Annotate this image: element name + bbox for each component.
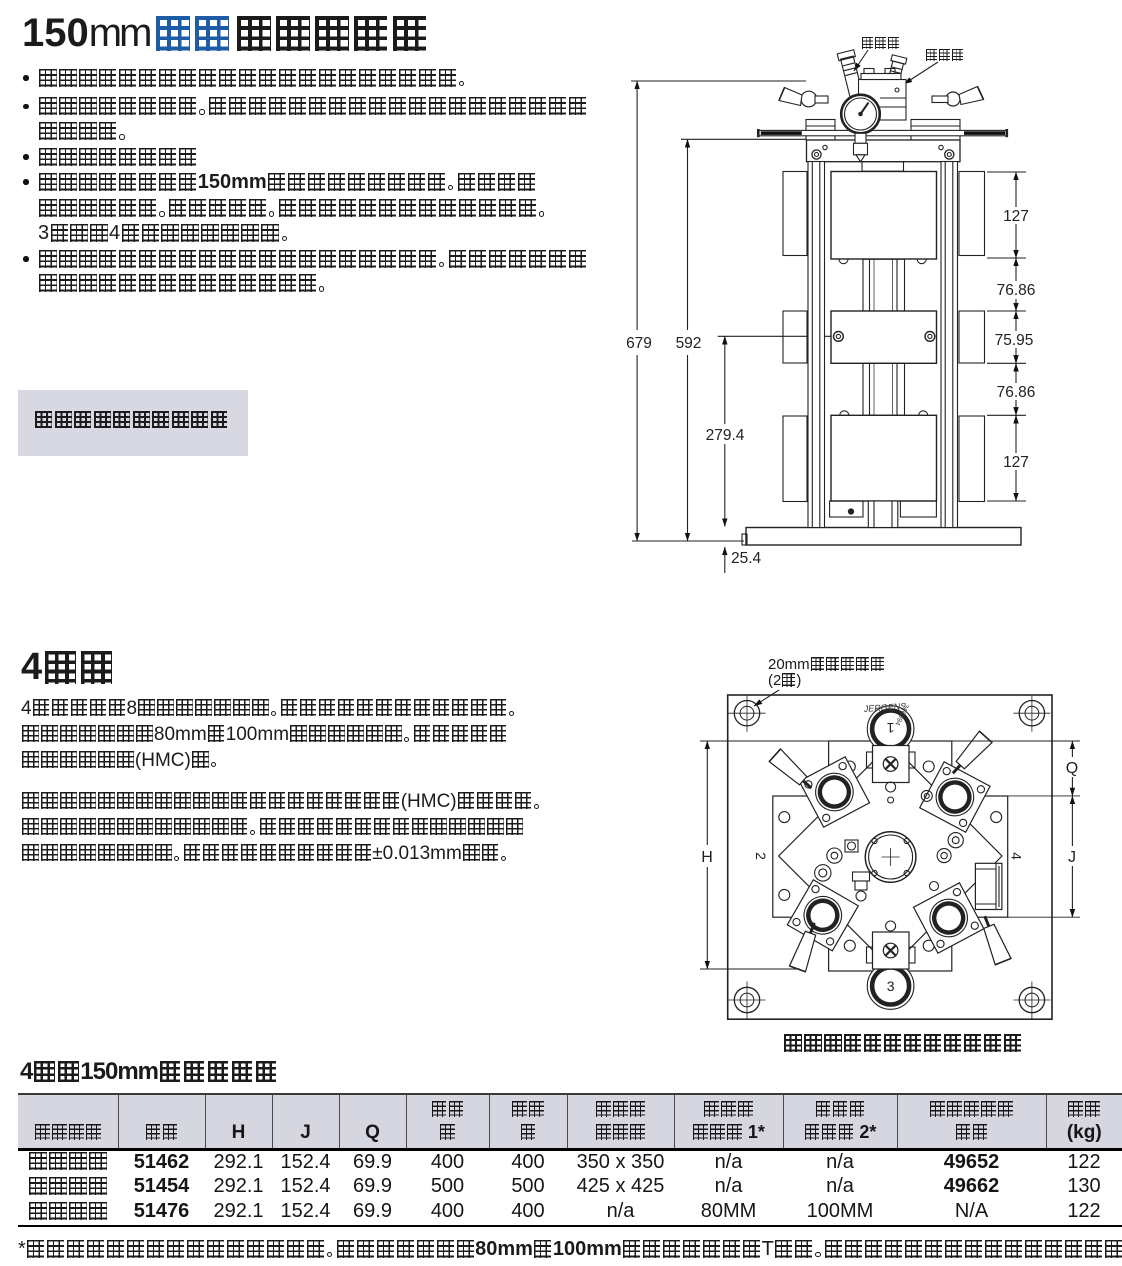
svg-text:1: 1 <box>886 720 894 736</box>
svg-text:592: 592 <box>676 335 702 352</box>
svg-text:3: 3 <box>887 978 895 994</box>
svg-text:Q: Q <box>1066 760 1078 777</box>
svg-text:76.86: 76.86 <box>997 282 1036 299</box>
svg-text:25.4: 25.4 <box>731 550 762 567</box>
svg-text:127: 127 <box>1003 208 1029 225</box>
svg-text:2: 2 <box>753 852 769 860</box>
svg-text:127: 127 <box>1003 454 1029 471</box>
svg-text:4: 4 <box>1009 852 1025 860</box>
svg-text:679: 679 <box>626 335 652 352</box>
svg-text:75.95: 75.95 <box>995 332 1034 349</box>
svg-text:J: J <box>1068 849 1076 866</box>
svg-text:279.4: 279.4 <box>706 427 745 444</box>
svg-text:H: H <box>701 849 713 866</box>
svg-text:76.86: 76.86 <box>997 384 1036 401</box>
